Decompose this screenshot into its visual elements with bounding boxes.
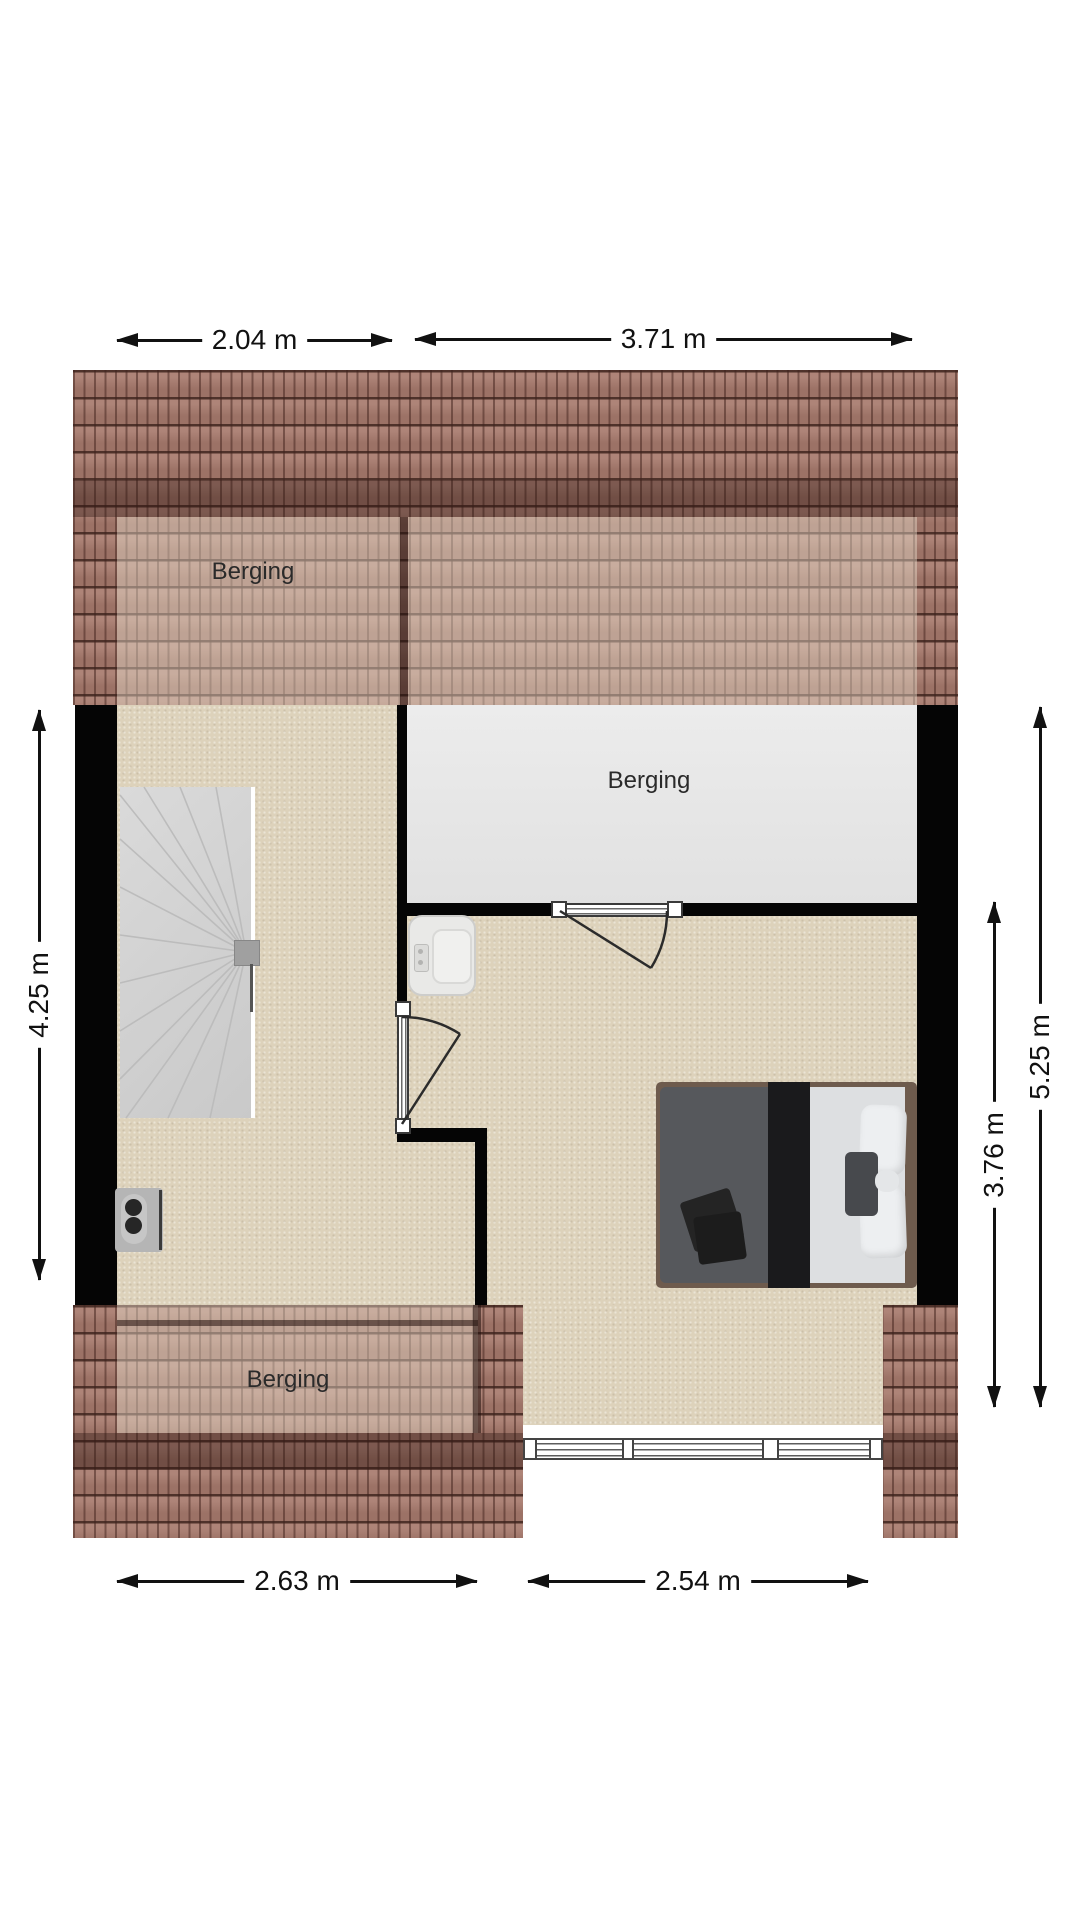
jog-wall-vertical [475, 1128, 487, 1305]
stair-newel [234, 940, 260, 966]
storage-wall-right-segment [681, 903, 917, 916]
window-jamb-right [869, 1438, 883, 1460]
dimension-top-left: 2.04 m [117, 327, 392, 353]
arrowhead-right-icon [891, 332, 913, 346]
wall-under-roof [400, 517, 408, 705]
bed-cushion [845, 1152, 878, 1216]
dimension-label: 2.54 m [645, 1564, 751, 1598]
socket-edge [159, 1190, 162, 1250]
arrowhead-left-icon [527, 1574, 549, 1588]
arrowhead-left-icon [414, 332, 436, 346]
throw-pillow [693, 1211, 747, 1265]
dimension-label: 2.04 m [202, 323, 308, 357]
stair-handrail-post [250, 964, 253, 1012]
dimension-label: 5.25 m [1023, 1004, 1057, 1110]
window-mullion [762, 1438, 779, 1460]
exterior-wall-right [917, 705, 958, 1305]
socket-hole [125, 1217, 142, 1234]
window-jamb-left [523, 1438, 537, 1460]
roof-ridge-band [73, 480, 958, 517]
interior-wall-hall [397, 705, 407, 1013]
window-mullion [622, 1438, 634, 1460]
arrowhead-up-icon [1033, 706, 1047, 728]
dimension-right-inner: 3.76 m [981, 902, 1007, 1407]
arrowhead-left-icon [116, 333, 138, 347]
bed-blanket-fold [768, 1082, 810, 1288]
room-label-middle-storage: Berging [608, 767, 691, 795]
door-leaf [560, 911, 651, 968]
dimension-bottom-left: 2.63 m [117, 1568, 477, 1594]
top-storage-room-under-roof [117, 517, 400, 705]
arrowhead-down-icon [32, 1259, 46, 1281]
roof-eave-band-right [883, 1433, 958, 1470]
door-arc [651, 911, 667, 968]
bed-sheet-knot [875, 1170, 899, 1192]
double-bed [656, 1082, 917, 1288]
dimension-left: 4.25 m [26, 710, 52, 1280]
arrowhead-up-icon [32, 709, 46, 731]
arrowhead-right-icon [456, 1574, 478, 1588]
storage-room-floor [407, 705, 917, 903]
dimension-label: 3.71 m [611, 322, 717, 356]
room-label-top-storage: Berging [212, 558, 295, 586]
wall-under-roof-vertical [473, 1305, 481, 1433]
dimension-label: 2.63 m [244, 1564, 350, 1598]
toilet-flush-dot [418, 949, 423, 954]
exterior-wall-left [75, 705, 117, 1305]
toilet-bowl [432, 929, 472, 984]
window-glazing-lines [523, 1443, 883, 1458]
arrowhead-down-icon [1033, 1386, 1047, 1408]
socket-hole [125, 1199, 142, 1216]
staircase-steps [120, 787, 251, 1118]
door-leaf [402, 1034, 460, 1124]
dormer-floor [523, 1305, 883, 1425]
floor-plan: Berging Berging Berging 2.04 m 3.71 m 4.… [0, 0, 1080, 1920]
wall-under-roof-horizontal [117, 1320, 478, 1326]
arrowhead-right-icon [847, 1574, 869, 1588]
arrowhead-right-icon [371, 333, 393, 347]
wall-socket [115, 1188, 163, 1252]
dimension-bottom-right: 2.54 m [528, 1568, 868, 1594]
arrowhead-down-icon [987, 1386, 1001, 1408]
hall-door-swing [395, 1005, 475, 1130]
toilet-flush-dot [418, 960, 423, 965]
storage-area-under-roof [408, 517, 917, 705]
dormer-window [523, 1438, 883, 1460]
dimension-right-outer: 5.25 m [1027, 707, 1053, 1407]
toilet [408, 915, 476, 996]
roof-top [73, 370, 958, 705]
arrowhead-up-icon [987, 901, 1001, 923]
dimension-top-right: 3.71 m [415, 326, 912, 352]
dimension-label: 4.25 m [22, 942, 56, 1048]
door-arc [402, 1017, 460, 1034]
roof-eave-band-left [73, 1433, 523, 1470]
arrowhead-left-icon [116, 1574, 138, 1588]
room-label-bottom-storage: Berging [247, 1366, 330, 1394]
dimension-label: 3.76 m [977, 1102, 1011, 1208]
storage-door-swing [545, 895, 680, 980]
toilet-flush-button [414, 944, 429, 972]
